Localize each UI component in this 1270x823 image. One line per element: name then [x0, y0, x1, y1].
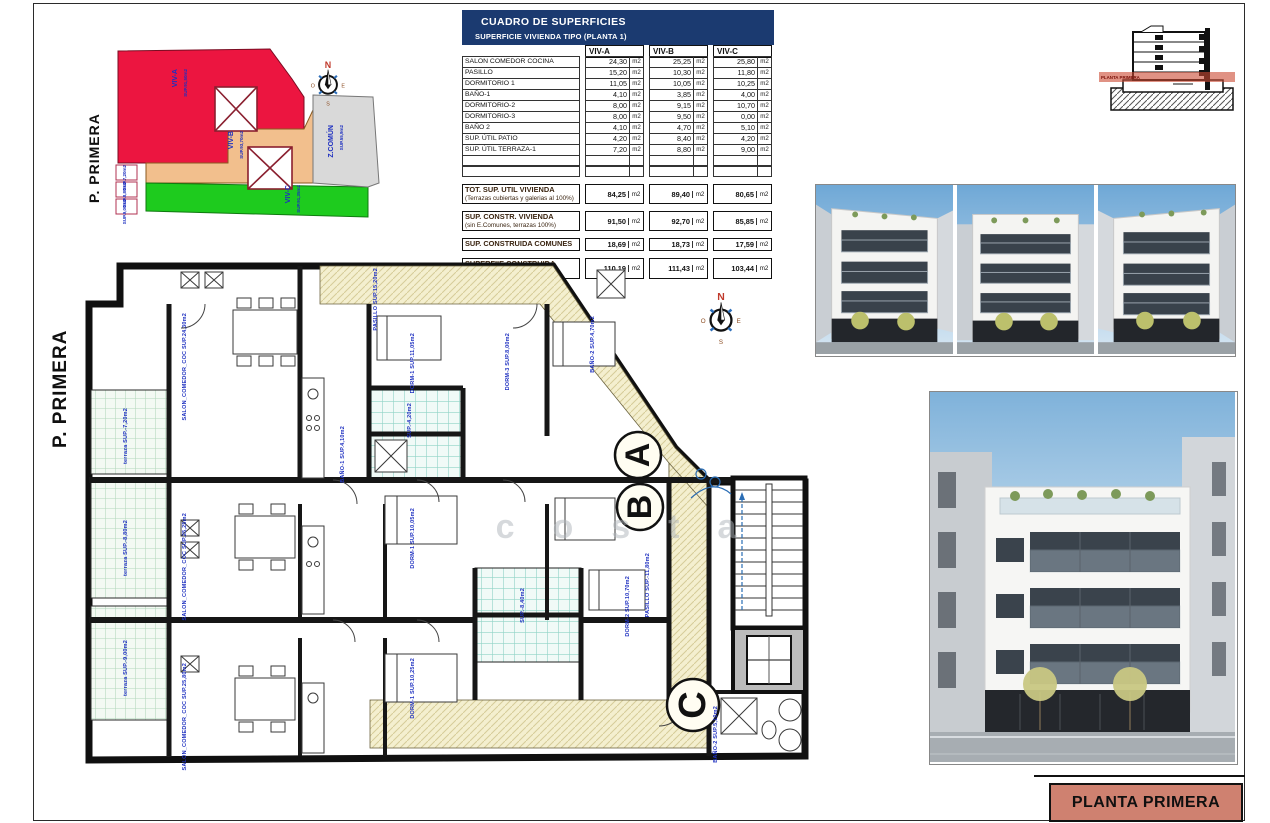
table-row: SUP. ÚTIL PATIO 4,20 m2 8,40 m2 4,20 m2 [462, 133, 774, 144]
room-label: SALON_COMEDOR_COC SUP.25,80m2 [182, 663, 188, 770]
compass-o: O [311, 83, 315, 89]
table-row: PASILLO 15,20 m2 10,30 m2 11,80 m2 [462, 67, 774, 78]
room-label: BAÑO-1 SUP.4,10m2 [340, 426, 346, 483]
total-value-b: 89,40 m2 [649, 184, 708, 204]
table-row: DORMITORIO-3 8,00 m2 9,50 m2 0,00 m2 [462, 111, 774, 122]
render-front [929, 391, 1238, 765]
table-row: BAÑO-1 4,10 m2 3,85 m2 4,00 m2 [462, 89, 774, 100]
table-body: SALON COMEDOR COCINA 24,30 m2 25,25 m2 2… [462, 56, 774, 155]
zone-comun-name: Z.COMÚN [328, 125, 335, 158]
total-label-cell: SUP. CONSTR. VIVIENDA (sin E.Comunes, te… [462, 211, 580, 231]
terrace-tile-areas [91, 390, 169, 720]
site-plan-title: P. PRIMERA [86, 83, 102, 203]
table-row: SALON COMEDOR COCINA 24,30 m2 25,25 m2 2… [462, 56, 774, 67]
section-band-label: PLANTA PRIMERA [1101, 75, 1141, 80]
render-triptych [815, 184, 1236, 357]
zone-comun-sup: SUP.55,9m2 [339, 125, 344, 150]
room-label: PASILLO SUP.-11,80m2 [645, 553, 651, 617]
room-label: SALON_COMEDOR_COC SUP.24,30m2 [182, 313, 188, 420]
table-row: BAÑO 2 4,10 m2 4,70 m2 5,10 m2 [462, 122, 774, 133]
room-label: PASILLO SUP.15,20m2 [373, 268, 379, 331]
room-label: terraza SUP.-9,00m2 [123, 640, 129, 696]
compass-rose: N E S O [308, 58, 348, 108]
surfaces-table: CUADRO DE SUPERFICIES SUPERFICIE VIVIEND… [462, 10, 774, 279]
total-value-c: 80,65 m2 [713, 184, 772, 204]
zone-c-name: VIV-C [285, 185, 292, 203]
table-row: SUP. ÚTIL TERRAZA-1 7,20 m2 8,80 m2 9,00… [462, 144, 774, 155]
total-value-b: 92,70 m2 [649, 211, 708, 231]
table-title: CUADRO DE SUPERFICIES [475, 14, 768, 32]
total-label-cell: SUP. CONSTRUIDA COMUNES [462, 238, 580, 251]
table-total-row: SUP. CONSTR. VIVIENDA (sin E.Comunes, te… [462, 211, 774, 231]
room-label: terraza SUP.-7,20m2 [123, 408, 129, 464]
table-total-row: SUP. CONSTRUIDA COMUNES 18,69 m2 18,73 m… [462, 238, 774, 251]
drawing-sheet: P. PRIMERA VIV-A SUP.91,50m2 VIV-B SUP.9… [0, 0, 1270, 823]
room-label: DORM-1 SUP.10,25m2 [410, 658, 416, 719]
table-empty-row [462, 166, 774, 177]
unit-a-marker: A [619, 443, 657, 468]
render-center [957, 185, 1094, 354]
total-value-a: 18,69 m2 [585, 238, 644, 251]
sheet-title: PLANTA PRIMERA [1049, 783, 1243, 822]
compass-s: S [326, 101, 330, 107]
table-subtitle: SUPERFICIE VIVIENDA TIPO (PLANTA 1) [475, 32, 768, 41]
watermark: costa [430, 508, 840, 558]
elevator [733, 628, 805, 692]
zone-a-name: VIV-A [172, 69, 179, 87]
total-value-a: 91,50 m2 [585, 211, 644, 231]
room-label: SUP.-4,20m2 [407, 403, 413, 438]
total-value-b: 18,73 m2 [649, 238, 708, 251]
room-label: DORM-1 SUP.11,05m2 [410, 333, 416, 393]
total-value-c: 85,85 m2 [713, 211, 772, 231]
room-label: DORM-3 SUP.8,00m2 [505, 333, 511, 390]
total-label-cell: TOT. SUP. UTIL VIVIENDA (Terrazas cubier… [462, 184, 580, 204]
room-label: SUP.-8,40m2 [520, 588, 526, 623]
render-right [1098, 185, 1235, 354]
room-label: DORM-1 SUP.10,05m2 [410, 508, 416, 569]
room-label: SALON_COMEDOR_COC SUP.25,25m2 [182, 513, 188, 620]
zone-c-sup: SUP.91,35m2 [296, 185, 301, 213]
zone-comun [313, 95, 379, 187]
compass-n: N [325, 60, 331, 70]
compass-e: E [341, 83, 345, 89]
render-front-image [930, 392, 1235, 762]
room-label: DORM-2 SUP.10,70m2 [625, 576, 631, 637]
table-row: DORMITORIO 1 11,05 m2 10,05 m2 10,25 m2 [462, 78, 774, 89]
zone-b-name: VIV-B [228, 131, 235, 149]
unit-c-marker: C [672, 691, 714, 718]
strip-label: SUP.9,00m2 [122, 199, 127, 224]
total-value-a: 84,25 m2 [585, 184, 644, 204]
floor-plan-title: P. PRIMERA [50, 283, 72, 448]
table-total-row: TOT. SUP. UTIL VIVIENDA (Terrazas cubier… [462, 184, 774, 204]
room-label: BAÑO-2 SUP.5,10m2 [713, 706, 719, 763]
table-header-band: CUADRO DE SUPERFICIES SUPERFICIE VIVIEND… [462, 10, 774, 45]
zone-b-sup: SUP.93,70m2 [239, 131, 244, 159]
total-value-c: 17,59 m2 [713, 238, 772, 251]
table-columns-row: VIV-A VIV-B VIV-C [462, 45, 774, 56]
render-left [816, 185, 953, 354]
room-label: terraza SUP.-8,80m2 [123, 520, 129, 576]
table-empty-row [462, 155, 774, 166]
room-label: BAÑO-2 SUP.4,70m2 [590, 316, 596, 373]
section-diagram: PLANTA PRIMERA [1093, 22, 1243, 117]
title-block: PLANTA PRIMERA [1034, 775, 1245, 823]
zone-a-sup: SUP.91,50m2 [183, 69, 188, 97]
table-row: DORMITORIO-2 8,00 m2 9,15 m2 10,70 m2 [462, 100, 774, 111]
